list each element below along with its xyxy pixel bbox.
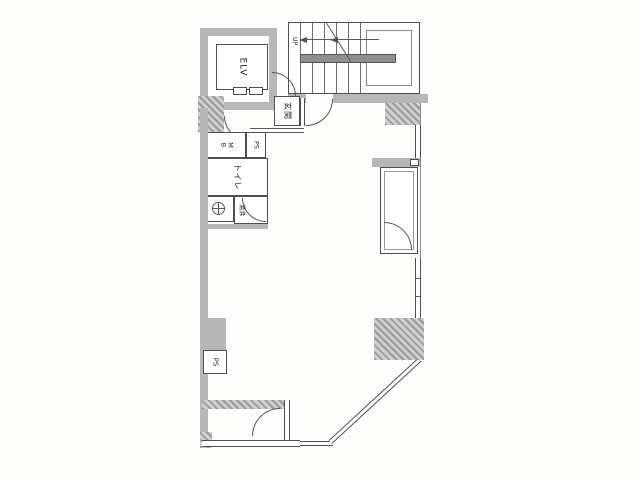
south-room-door-arc xyxy=(252,408,280,436)
stair-arrow-icon xyxy=(330,37,338,43)
pipe-shaft-upper-label: PS xyxy=(253,141,260,149)
south-wall xyxy=(202,440,300,447)
counter-wall-bar xyxy=(202,224,268,229)
diagonal-window-wall xyxy=(329,358,422,444)
east-window-lower xyxy=(415,258,421,318)
toilet-label: トイレ xyxy=(233,164,241,191)
west-wall-block xyxy=(200,318,226,350)
south-window xyxy=(300,441,333,446)
elevator-label: ELV xyxy=(238,58,247,77)
meter-box-label: M B xyxy=(219,142,234,148)
south-room-east-wall xyxy=(284,400,290,442)
west-wall xyxy=(200,108,208,448)
east-window-upper xyxy=(415,125,421,158)
east-window-mullion xyxy=(415,296,421,297)
east-window-mullion xyxy=(415,278,421,279)
meter-box-label-m: M xyxy=(226,142,233,148)
entrance-door-arc xyxy=(306,99,333,126)
stair-treads-lower-flight xyxy=(300,63,372,93)
hot-water-label: 湯沸 xyxy=(238,204,244,216)
cleaning-sink-icon xyxy=(218,202,219,215)
floorplan-canvas: ELV UP 玄関 M B PS トイレ 湯沸 PS xyxy=(0,0,640,480)
stair-direction-line xyxy=(303,39,379,40)
southeast-wall-block xyxy=(374,318,424,360)
stair-arrow-icon xyxy=(299,37,307,43)
elevator-door-mark-left xyxy=(233,87,247,95)
entrance-label: 玄関 xyxy=(283,102,291,120)
north-east-wall-block xyxy=(385,103,420,125)
elevator-door-mark-right xyxy=(249,87,263,95)
stairs-up-label: UP xyxy=(291,37,297,45)
entrance-step-line xyxy=(250,128,304,129)
bay-window-gap xyxy=(410,159,419,166)
pipe-shaft-lower-label: PS xyxy=(212,358,219,367)
entrance-door-leaf xyxy=(300,98,305,126)
north-wall-right xyxy=(333,94,428,103)
meter-box-label-b: B xyxy=(219,142,226,148)
